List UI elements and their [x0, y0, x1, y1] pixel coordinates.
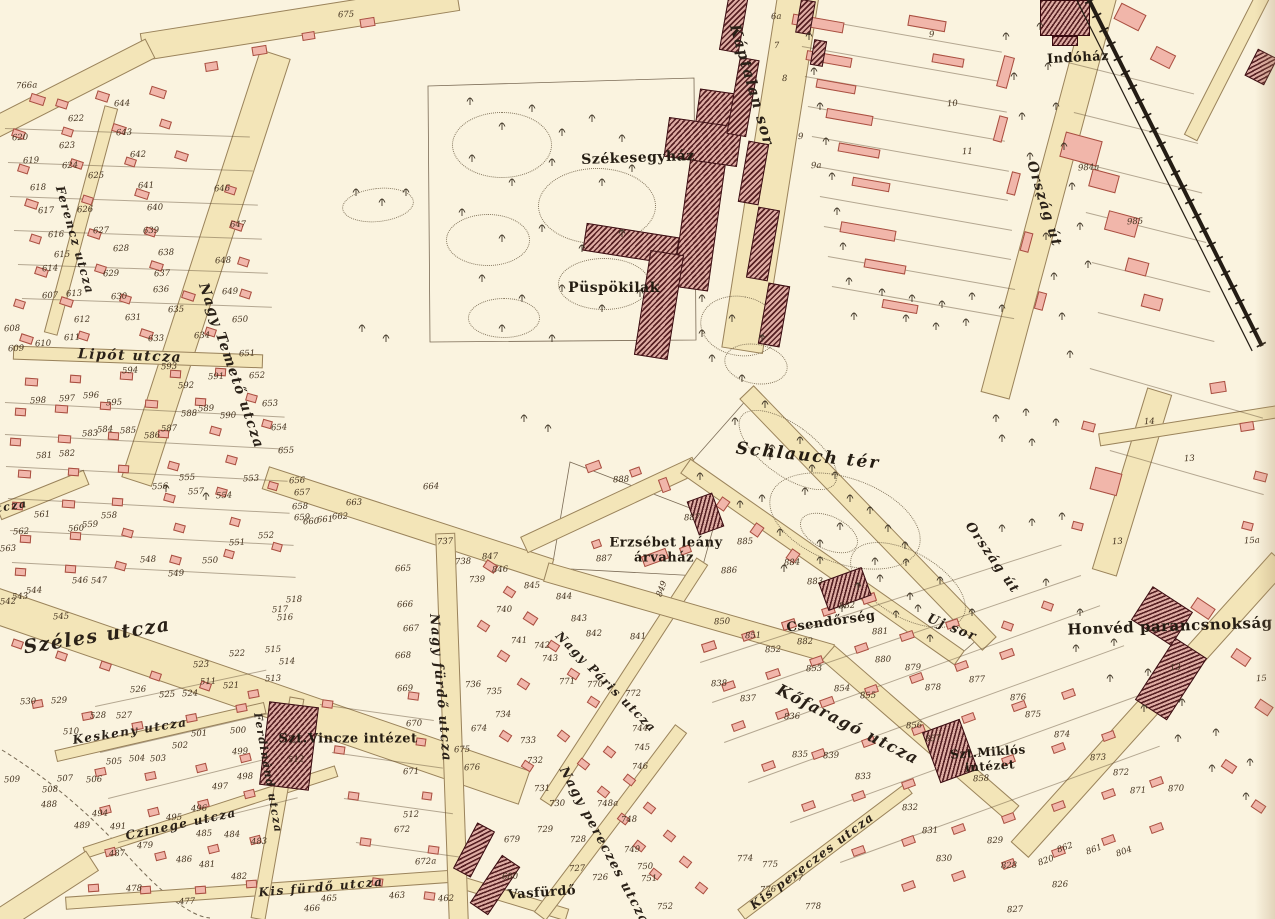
parcel-number: 854 — [834, 684, 851, 695]
parcel-number: 662 — [332, 512, 349, 523]
tree-icon — [1073, 645, 1079, 652]
parcel-number: 656 — [289, 476, 306, 487]
parcel-number: 766a — [16, 80, 38, 91]
parcel-number: 586 — [144, 431, 161, 442]
building — [503, 586, 517, 599]
parcel-number: 675 — [454, 745, 471, 756]
parcel-number: 737 — [437, 537, 454, 548]
tree-icon — [549, 159, 555, 166]
parcel-number: 663 — [346, 498, 363, 509]
parcel-number: 833 — [855, 772, 872, 783]
parcel-number: 504 — [129, 754, 146, 765]
parcel-number: 544 — [26, 586, 43, 597]
parcel-number: 522 — [229, 649, 246, 660]
place-label-sztmiklos-2: intézet — [965, 757, 1016, 774]
parcel-number: 13 — [1112, 537, 1123, 548]
tree-icon — [1213, 729, 1219, 736]
parcel-number: 664 — [423, 482, 440, 493]
tree-icon — [963, 319, 969, 326]
place-label-szekesegyhaz: Székesegyház — [581, 148, 695, 168]
building — [147, 807, 160, 817]
building — [497, 650, 511, 663]
parcel-number: 552 — [258, 531, 275, 542]
parcel-number: 674 — [471, 724, 488, 735]
parcel-number: 615 — [54, 250, 71, 261]
tree-icon — [1077, 223, 1083, 230]
parcel-number: 524 — [182, 689, 199, 700]
tree-icon — [1247, 759, 1253, 766]
tree-icon — [840, 243, 846, 250]
parcel-number: 613 — [66, 289, 83, 300]
parcel-number: 521 — [223, 681, 240, 692]
parcel-number: 515 — [265, 645, 282, 656]
building — [159, 118, 172, 129]
tree-icon — [521, 415, 527, 422]
building — [679, 855, 693, 868]
parcel-number: 852 — [765, 645, 782, 656]
parcel-number: 558 — [101, 511, 118, 522]
parcel-number: 509 — [4, 775, 21, 786]
parcel-number: 498 — [237, 772, 254, 783]
parcel-number: 884 — [784, 558, 801, 569]
building — [731, 720, 746, 732]
building — [65, 565, 77, 574]
parcel-number: 657 — [294, 488, 311, 499]
parcel-number: 510 — [63, 727, 80, 738]
parcel-number: 547 — [91, 576, 108, 587]
parcel-number: 484 — [224, 830, 241, 841]
parcel-number: 652 — [249, 371, 266, 382]
building — [225, 455, 238, 466]
building — [204, 61, 218, 72]
railway-tie — [1107, 42, 1116, 46]
parcel-number: 506 — [86, 775, 103, 786]
parcel-number: 546 — [72, 576, 89, 587]
railway-tie — [1207, 242, 1216, 246]
parcel-number: 596 — [83, 391, 100, 402]
parcel-number: 841 — [630, 632, 647, 643]
parcel-number: 649 — [222, 287, 239, 298]
parcel-number: 828 — [1001, 861, 1018, 872]
parcel-number: 738 — [455, 557, 472, 568]
building — [347, 791, 359, 800]
parcel-number: 727 — [569, 864, 586, 875]
building — [801, 800, 816, 812]
parcel-number: 595 — [106, 398, 123, 409]
tree-icon — [699, 295, 705, 302]
parcel-number: 644 — [114, 99, 131, 110]
tree-icon — [903, 315, 909, 322]
scan-edge-shade — [1255, 0, 1275, 919]
building — [701, 640, 717, 653]
tree-icon — [1243, 793, 1249, 800]
building — [1149, 822, 1164, 834]
parcel-number: 830 — [936, 854, 953, 865]
parcel-number: 843 — [571, 614, 588, 625]
parcel-number: 483 — [251, 837, 268, 848]
building — [1209, 381, 1227, 394]
parcel-number: 732 — [527, 756, 544, 767]
railway-tie — [1200, 228, 1209, 232]
parcel-number: 650 — [232, 315, 249, 326]
tree-icon — [1011, 73, 1017, 80]
building — [1081, 420, 1096, 432]
building — [118, 465, 130, 474]
parcel-number: 668 — [395, 651, 412, 662]
parcel-number: 9 — [798, 132, 804, 142]
building — [421, 791, 432, 800]
railway-tie — [1235, 299, 1244, 303]
tree-icon — [1069, 183, 1075, 190]
parcel-number: 648 — [215, 256, 232, 267]
parcel-number: 665 — [395, 564, 412, 575]
parcel-number: 771 — [559, 677, 576, 688]
parcel-number: 11 — [962, 147, 973, 158]
building — [663, 829, 677, 842]
parcel-number: 587 — [161, 424, 178, 435]
parcel-number: 6a — [771, 12, 782, 23]
railway-tie — [1214, 257, 1223, 261]
tree-icon — [479, 275, 485, 282]
building — [1239, 421, 1254, 432]
railway-tie — [1121, 70, 1130, 74]
parcel-number: 746 — [632, 762, 649, 773]
building — [62, 500, 76, 509]
parcel-number: 858 — [973, 774, 990, 785]
parcel-number: 545 — [53, 612, 70, 623]
building — [899, 630, 915, 642]
building — [167, 461, 180, 472]
parcel-number: 635 — [168, 305, 185, 316]
parcel-number: 500 — [230, 726, 247, 737]
building — [577, 757, 591, 770]
building — [70, 375, 82, 384]
tree-icon — [1209, 765, 1215, 772]
parcel-number: 675 — [338, 10, 355, 21]
historical-city-map: SzékesegyházPüspökilakIndóházErzsébet le… — [0, 0, 1275, 919]
tree-icon — [834, 208, 840, 215]
railway-tie — [1142, 113, 1151, 117]
building — [95, 90, 110, 103]
building — [321, 699, 333, 708]
parcel-number: 585 — [120, 426, 137, 437]
parcel-number: 643 — [116, 128, 133, 139]
building — [239, 288, 252, 299]
building — [1001, 620, 1014, 631]
parcel-number: 740 — [496, 605, 513, 616]
parcel-number: 482 — [231, 872, 248, 883]
parcel-number: 654 — [271, 423, 288, 434]
building — [237, 256, 250, 267]
place-label-honved: Honvéd parancsnokság — [1067, 613, 1273, 638]
tree-icon — [359, 325, 365, 332]
parcel-number: 666 — [397, 600, 414, 611]
building — [761, 760, 776, 772]
tree-icon — [1067, 351, 1073, 358]
tree-icon — [459, 209, 465, 216]
parcel-number: 850 — [714, 617, 731, 628]
building — [523, 611, 539, 626]
parcel-number: 851 — [745, 631, 762, 642]
building — [1230, 648, 1251, 667]
building — [585, 460, 602, 474]
building — [999, 648, 1015, 660]
parcel-number: 750 — [637, 862, 654, 873]
parcel-number: 837 — [740, 694, 757, 705]
parcel-number: 820 — [1037, 854, 1056, 869]
building — [223, 549, 235, 559]
parcel-number: 667 — [403, 624, 420, 635]
parcel-number: 527 — [116, 711, 133, 722]
building — [499, 730, 513, 743]
park-path-contour — [452, 112, 552, 178]
parcel-number: 627 — [93, 226, 110, 237]
parcel-number: 630 — [111, 292, 128, 303]
parcel-number: 776 — [760, 885, 777, 896]
parcel-number: 629 — [103, 269, 120, 280]
building — [1006, 171, 1021, 196]
tree-icon — [759, 495, 765, 502]
building — [517, 678, 531, 691]
parcel-number: 530 — [20, 697, 37, 708]
parcel-number: 734 — [495, 710, 512, 721]
parcel-number: 10 — [947, 99, 958, 110]
parcel-number: 831 — [922, 826, 939, 837]
building — [597, 785, 611, 798]
place-label-indohaz: Indóház — [1047, 49, 1110, 67]
parcel-number: 880 — [875, 655, 892, 666]
parcel-number: 658 — [292, 502, 309, 513]
bishops-residence-building — [634, 250, 684, 360]
parcel-number: 583 — [82, 429, 99, 440]
building — [61, 126, 74, 137]
building — [951, 823, 966, 835]
tree-icon — [999, 525, 1005, 532]
parcel-number: 887 — [596, 554, 613, 565]
park-path-contour — [468, 298, 540, 338]
building — [88, 884, 100, 893]
parcel-boundary-line — [344, 798, 453, 814]
building — [816, 79, 857, 95]
parcel-number: 508 — [42, 785, 59, 796]
parcel-number: 550 — [202, 556, 219, 567]
parcel-number: 463 — [389, 891, 406, 902]
parcel-number: 730 — [549, 799, 566, 810]
building — [1113, 3, 1146, 32]
parcel-number: 562 — [13, 527, 30, 538]
building — [1041, 600, 1054, 611]
parcel-number: 13 — [1170, 663, 1181, 674]
parcel-number: 862 — [1056, 841, 1075, 856]
parcel-number: 736 — [465, 680, 482, 691]
parcel-boundary-line — [8, 498, 290, 514]
parcel-number: 745 — [634, 743, 651, 754]
parcel-number: 741 — [511, 636, 528, 647]
tree-icon — [589, 115, 595, 122]
railway-tie — [1114, 56, 1123, 60]
parcel-number: 496 — [191, 804, 208, 815]
parcel-number: 516 — [277, 613, 294, 624]
parcel-number: 624 — [62, 161, 79, 172]
parcel-number: 642 — [130, 150, 147, 161]
parcel-number: 556 — [152, 482, 169, 493]
tree-icon — [829, 173, 835, 180]
building — [173, 523, 186, 534]
parcel-number: 594 — [122, 366, 139, 377]
railway-tie — [1157, 142, 1166, 146]
parcel-number: 485 — [196, 829, 213, 840]
building — [10, 438, 22, 447]
parcel-number: 743 — [542, 654, 559, 665]
parcel-number: 879 — [905, 663, 922, 674]
parcel-number: 559 — [82, 520, 99, 531]
parcel-number: 628 — [113, 244, 130, 255]
parcel-number: 617 — [38, 206, 55, 217]
parcel-number: 507 — [57, 774, 74, 785]
parcel-number: 609 — [8, 344, 25, 355]
indohaz-building — [1052, 36, 1078, 46]
parcel-number: 847 — [482, 552, 499, 563]
building — [1090, 467, 1123, 496]
parcel-number: 871 — [1130, 786, 1147, 797]
parcel-number: 672a — [415, 856, 437, 867]
parcel-number: 883 — [807, 577, 824, 588]
parcel-boundary-line — [812, 136, 1009, 172]
parcel-number: 842 — [586, 629, 603, 640]
tree-icon — [1059, 513, 1065, 520]
parcel-number: 619 — [23, 156, 40, 167]
tree-icon — [709, 355, 715, 362]
building — [839, 221, 896, 242]
parcel-number: 870 — [1168, 784, 1185, 795]
building — [695, 881, 709, 894]
parcel-number: 502 — [172, 741, 189, 752]
parcel-number: 679 — [504, 835, 521, 846]
parcel-number: 877 — [969, 675, 986, 686]
parcel-number: 593 — [161, 362, 178, 373]
parcel-number: 563 — [0, 544, 16, 555]
parcel-number: 728 — [570, 835, 587, 846]
parcel-number: 640 — [147, 203, 164, 214]
parcel-number: 591 — [208, 372, 225, 383]
tree-icon — [1107, 675, 1113, 682]
parcel-number: 542 — [0, 597, 16, 608]
tree-icon — [467, 98, 473, 105]
building — [1101, 834, 1116, 846]
building — [864, 258, 907, 274]
parcel-number: 653 — [262, 399, 279, 410]
building — [1150, 46, 1176, 69]
building — [603, 745, 617, 758]
parcel-number: 845 — [524, 581, 541, 592]
building — [301, 31, 315, 41]
building — [1071, 521, 1084, 532]
parcel-number: 526 — [130, 685, 147, 696]
building — [931, 53, 964, 67]
parcel-number: 770 — [587, 680, 604, 691]
building — [18, 470, 32, 479]
place-label-vasfurdo: Vasfürdő — [507, 883, 576, 903]
parcel-number: 477 — [179, 897, 196, 908]
parcel-number: 729 — [537, 825, 554, 836]
parcel-number: 612 — [74, 315, 91, 326]
parcel-number: 616 — [48, 230, 65, 241]
tree-icon — [539, 225, 545, 232]
parcel-number: 466 — [304, 904, 321, 915]
railway-tie — [1243, 314, 1252, 318]
tree-icon — [1019, 113, 1025, 120]
place-label-erzsebet-2: árvaház — [634, 551, 694, 566]
tree-icon — [545, 425, 551, 432]
building — [1101, 788, 1116, 800]
parcel-number: 597 — [59, 394, 76, 405]
parcel-number: 499 — [232, 747, 249, 758]
building — [15, 568, 27, 577]
tree-icon — [559, 129, 565, 136]
parcel-number: 557 — [188, 487, 205, 498]
parcel-number: 744 — [632, 724, 649, 735]
building — [1241, 521, 1254, 532]
building — [114, 561, 127, 572]
railway-tie — [1135, 99, 1144, 103]
parcel-number: 611 — [64, 333, 81, 344]
building — [359, 17, 375, 28]
parcel-number: 641 — [138, 181, 155, 192]
parcel-number: 626 — [77, 205, 94, 216]
building — [13, 298, 26, 309]
parcel-number: 835 — [792, 750, 809, 761]
parcel-number: 491 — [110, 822, 127, 833]
parcel-number: 512 — [288, 755, 305, 766]
parcel-number: 494 — [92, 809, 109, 820]
building — [15, 408, 27, 417]
parcel-number: 855 — [860, 691, 877, 702]
parcel-number: 487 — [109, 849, 126, 860]
building — [951, 870, 966, 882]
parcel-number: 486 — [176, 855, 193, 866]
building — [58, 435, 72, 444]
parcel-number: 671 — [403, 767, 420, 778]
building — [25, 378, 39, 387]
parcel-number: 670 — [406, 719, 423, 730]
parcel-boundary-line — [1092, 262, 1211, 292]
building — [901, 880, 916, 892]
parcel-number: 853 — [806, 664, 823, 675]
road-top-road — [140, 0, 460, 61]
building — [427, 845, 439, 854]
parcel-number: 9 — [929, 30, 935, 40]
parcel-number: 592 — [178, 381, 195, 392]
building — [901, 835, 916, 847]
parcel-number: 748a — [597, 798, 619, 809]
tree-icon — [811, 68, 817, 75]
tree-icon — [933, 323, 939, 330]
parcel-boundary-line — [816, 166, 1008, 201]
building — [1149, 776, 1164, 788]
parcel-number: 876 — [1010, 693, 1027, 704]
tree-icon — [1053, 419, 1059, 426]
place-label-puspokilak: Püspökilak — [568, 280, 660, 296]
parcel-number: 739 — [469, 575, 486, 586]
building — [154, 851, 167, 861]
building — [68, 468, 80, 477]
tree-icon — [1111, 639, 1117, 646]
parcel-number: 497 — [212, 782, 229, 793]
parcel-number: 512 — [403, 810, 420, 821]
parcel-number: 836 — [784, 712, 801, 723]
building — [1125, 257, 1150, 276]
parcel-number: 549 — [168, 569, 185, 580]
